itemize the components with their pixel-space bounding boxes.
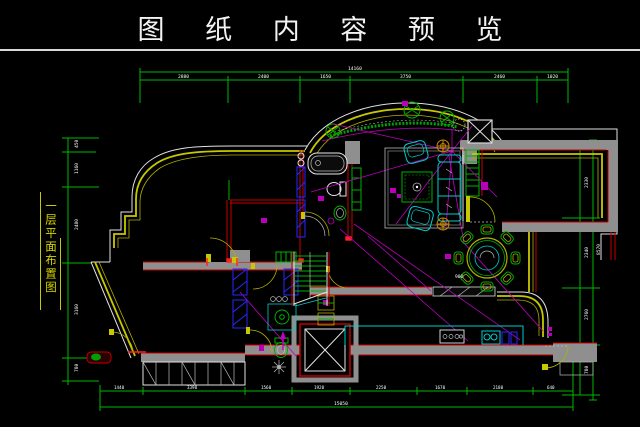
direction-arrow (280, 331, 286, 339)
door-leaf (466, 196, 470, 222)
flue-shaft (468, 120, 492, 143)
dining-area: 900 (454, 225, 520, 291)
svg-text:2760: 2760 (584, 309, 590, 320)
svg-text:1560: 1560 (261, 385, 272, 390)
svg-text:2480: 2480 (74, 219, 80, 230)
armchair (403, 139, 429, 164)
svg-text:3750: 3750 (400, 74, 411, 80)
svg-text:2460: 2460 (494, 74, 505, 80)
svg-text:780: 780 (584, 365, 590, 374)
washbasin (334, 206, 346, 220)
electrical-wiring (240, 124, 552, 356)
svg-text:15050: 15050 (334, 401, 348, 407)
plant-icon (453, 119, 465, 131)
svg-text:2180: 2180 (493, 385, 504, 390)
svg-text:2330: 2330 (584, 177, 590, 188)
svg-text:450: 450 (74, 139, 80, 148)
bathroom-top (297, 153, 361, 237)
svg-text:1020: 1020 (547, 74, 558, 80)
door-leaf (542, 364, 548, 370)
wiring-label (481, 182, 488, 190)
cooktop (440, 330, 464, 343)
svg-text:3160: 3160 (74, 304, 80, 315)
wardrobe (143, 362, 245, 385)
svg-text:2880: 2880 (178, 74, 189, 80)
svg-text:2250: 2250 (376, 385, 387, 390)
door-swing-arc (470, 197, 495, 222)
wiring-label (402, 101, 408, 106)
living-room (385, 139, 463, 231)
drawing-preview-window: 图 纸 内 容 预 览 一层平面布置图 14160 2880 2400 1650… (0, 0, 640, 427)
svg-text:900: 900 (455, 274, 464, 280)
svg-text:640: 640 (547, 385, 555, 390)
dining-chairs (454, 225, 520, 291)
svg-text:2340: 2340 (584, 247, 590, 258)
toilet (327, 183, 341, 196)
svg-text:1670: 1670 (435, 385, 446, 390)
floor-plan-canvas: 14160 2880 2400 1650 3750 2460 1020 450 … (0, 0, 640, 427)
svg-text:1160: 1160 (74, 163, 80, 174)
ceiling-lamp-symbol (272, 360, 286, 374)
svg-text:3390: 3390 (187, 385, 198, 390)
dimension-lines-top: 14160 2880 2400 1650 3750 2460 1020 (140, 66, 568, 103)
elevator-shaft (294, 318, 356, 380)
dining-table (467, 238, 507, 278)
svg-text:2400: 2400 (258, 74, 269, 80)
svg-text:780: 780 (74, 363, 80, 372)
svg-text:1920: 1920 (314, 385, 325, 390)
svg-text:1440: 1440 (114, 385, 125, 390)
svg-text:1650: 1650 (320, 74, 331, 80)
svg-text:14160: 14160 (348, 66, 362, 72)
